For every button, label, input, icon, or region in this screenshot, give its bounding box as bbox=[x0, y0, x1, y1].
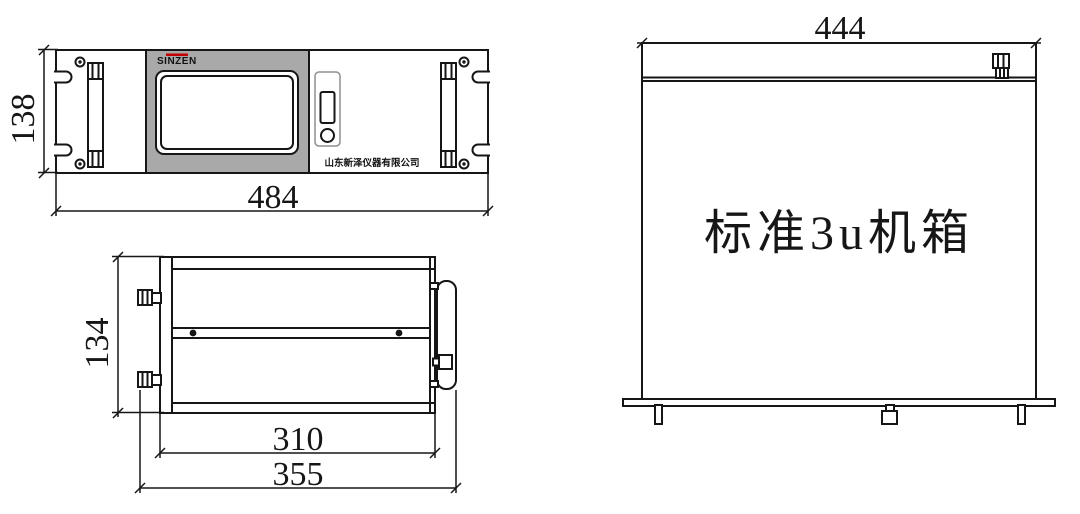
connector-panel bbox=[315, 72, 340, 146]
base-leg-right bbox=[1018, 405, 1025, 424]
dim-label-front-width: 484 bbox=[223, 181, 323, 215]
lcd-screen bbox=[161, 76, 293, 149]
rack-ear-slot bbox=[54, 145, 72, 156]
side-screw-dot bbox=[190, 330, 197, 337]
tube-fitting-top bbox=[138, 290, 161, 305]
dim-label-side-height: 134 bbox=[81, 308, 115, 378]
top-vent-fitting bbox=[993, 54, 1009, 78]
brand-logo: SINZEN bbox=[157, 56, 197, 67]
rack-ear-slot bbox=[473, 72, 490, 83]
base-plate bbox=[623, 399, 1055, 406]
dim-label-rear-width: 444 bbox=[790, 12, 890, 46]
company-name: 山东新泽仪器有限公司 bbox=[310, 159, 434, 170]
bottom-drain-fitting bbox=[882, 405, 897, 424]
base-leg-left bbox=[655, 405, 662, 424]
dim-label-front-height: 138 bbox=[7, 84, 41, 154]
tube-fitting-bottom bbox=[138, 372, 161, 387]
handle-latch bbox=[439, 355, 452, 369]
chassis-label: 标准3u机箱 bbox=[659, 207, 1019, 261]
side-screw-dot bbox=[396, 330, 403, 337]
chassis-side-body bbox=[160, 257, 435, 413]
rack-ear-slot bbox=[473, 145, 490, 156]
rack-ear-slot bbox=[54, 72, 72, 83]
dim-label-side-depth-inner: 310 bbox=[248, 423, 348, 457]
dim-label-side-depth-outer: 355 bbox=[248, 458, 348, 492]
drawing-canvas: 138 484 SINZEN 山东新泽仪器有限公司 134 310 355 44… bbox=[0, 0, 1080, 514]
